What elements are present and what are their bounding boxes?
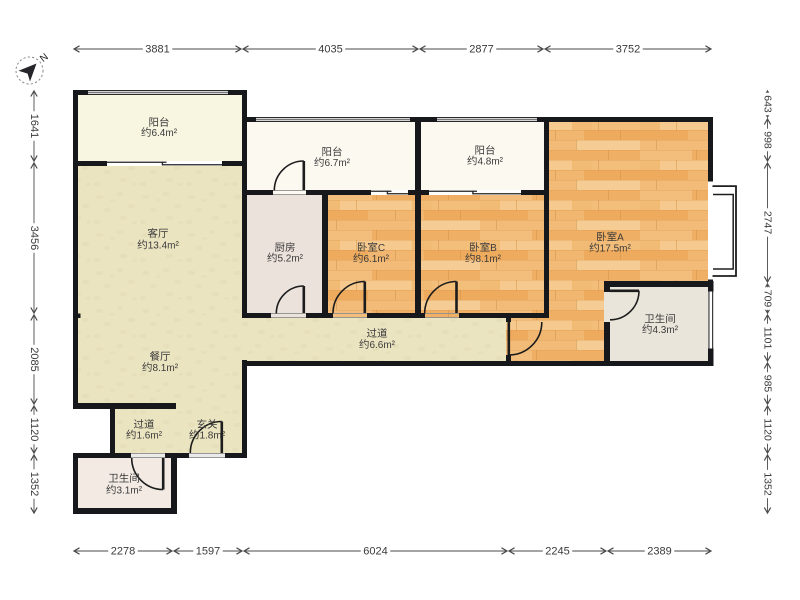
svg-text:4035: 4035 [318, 44, 342, 56]
svg-text:2245: 2245 [545, 546, 569, 558]
svg-text:6.4m²: 6.4m² [151, 128, 177, 139]
svg-text:4.8m²: 4.8m² [477, 156, 503, 167]
svg-text:3456: 3456 [28, 226, 40, 250]
svg-text:2747: 2747 [762, 211, 774, 235]
svg-text:2278: 2278 [111, 546, 135, 558]
svg-text:2877: 2877 [469, 44, 493, 56]
svg-text:1.6m²: 1.6m² [136, 430, 162, 441]
svg-text:6.7m²: 6.7m² [324, 158, 350, 169]
svg-text:1.8m²: 1.8m² [199, 430, 225, 441]
svg-text:6024: 6024 [363, 546, 387, 558]
svg-text:8.1m²: 8.1m² [152, 363, 178, 374]
svg-text:13.4m²: 13.4m² [148, 240, 180, 251]
svg-text:17.5m²: 17.5m² [600, 243, 632, 254]
svg-text:1120: 1120 [28, 418, 40, 442]
svg-text:8.1m²: 8.1m² [475, 254, 501, 265]
svg-text:3.1m²: 3.1m² [116, 485, 142, 496]
svg-text:643: 643 [762, 95, 774, 113]
svg-text:2085: 2085 [28, 347, 40, 371]
svg-text:2389: 2389 [647, 546, 671, 558]
svg-text:5.2m²: 5.2m² [277, 253, 303, 264]
svg-text:4.3m²: 4.3m² [652, 325, 678, 336]
svg-text:C: C [378, 243, 385, 254]
svg-text:1641: 1641 [28, 114, 40, 138]
svg-text:3752: 3752 [616, 44, 640, 56]
svg-text:B: B [490, 243, 497, 254]
svg-text:1352: 1352 [28, 472, 40, 496]
svg-text:1120: 1120 [762, 418, 774, 441]
svg-text:1101: 1101 [762, 327, 774, 350]
svg-text:709: 709 [762, 290, 774, 308]
svg-text:A: A [617, 232, 624, 243]
svg-text:998: 998 [762, 131, 774, 149]
svg-text:1597: 1597 [196, 546, 220, 558]
svg-text:1352: 1352 [762, 472, 774, 496]
svg-text:6.1m²: 6.1m² [363, 254, 389, 265]
svg-text:985: 985 [762, 375, 774, 393]
svg-text:3881: 3881 [145, 44, 169, 56]
svg-text:6.6m²: 6.6m² [369, 340, 395, 351]
